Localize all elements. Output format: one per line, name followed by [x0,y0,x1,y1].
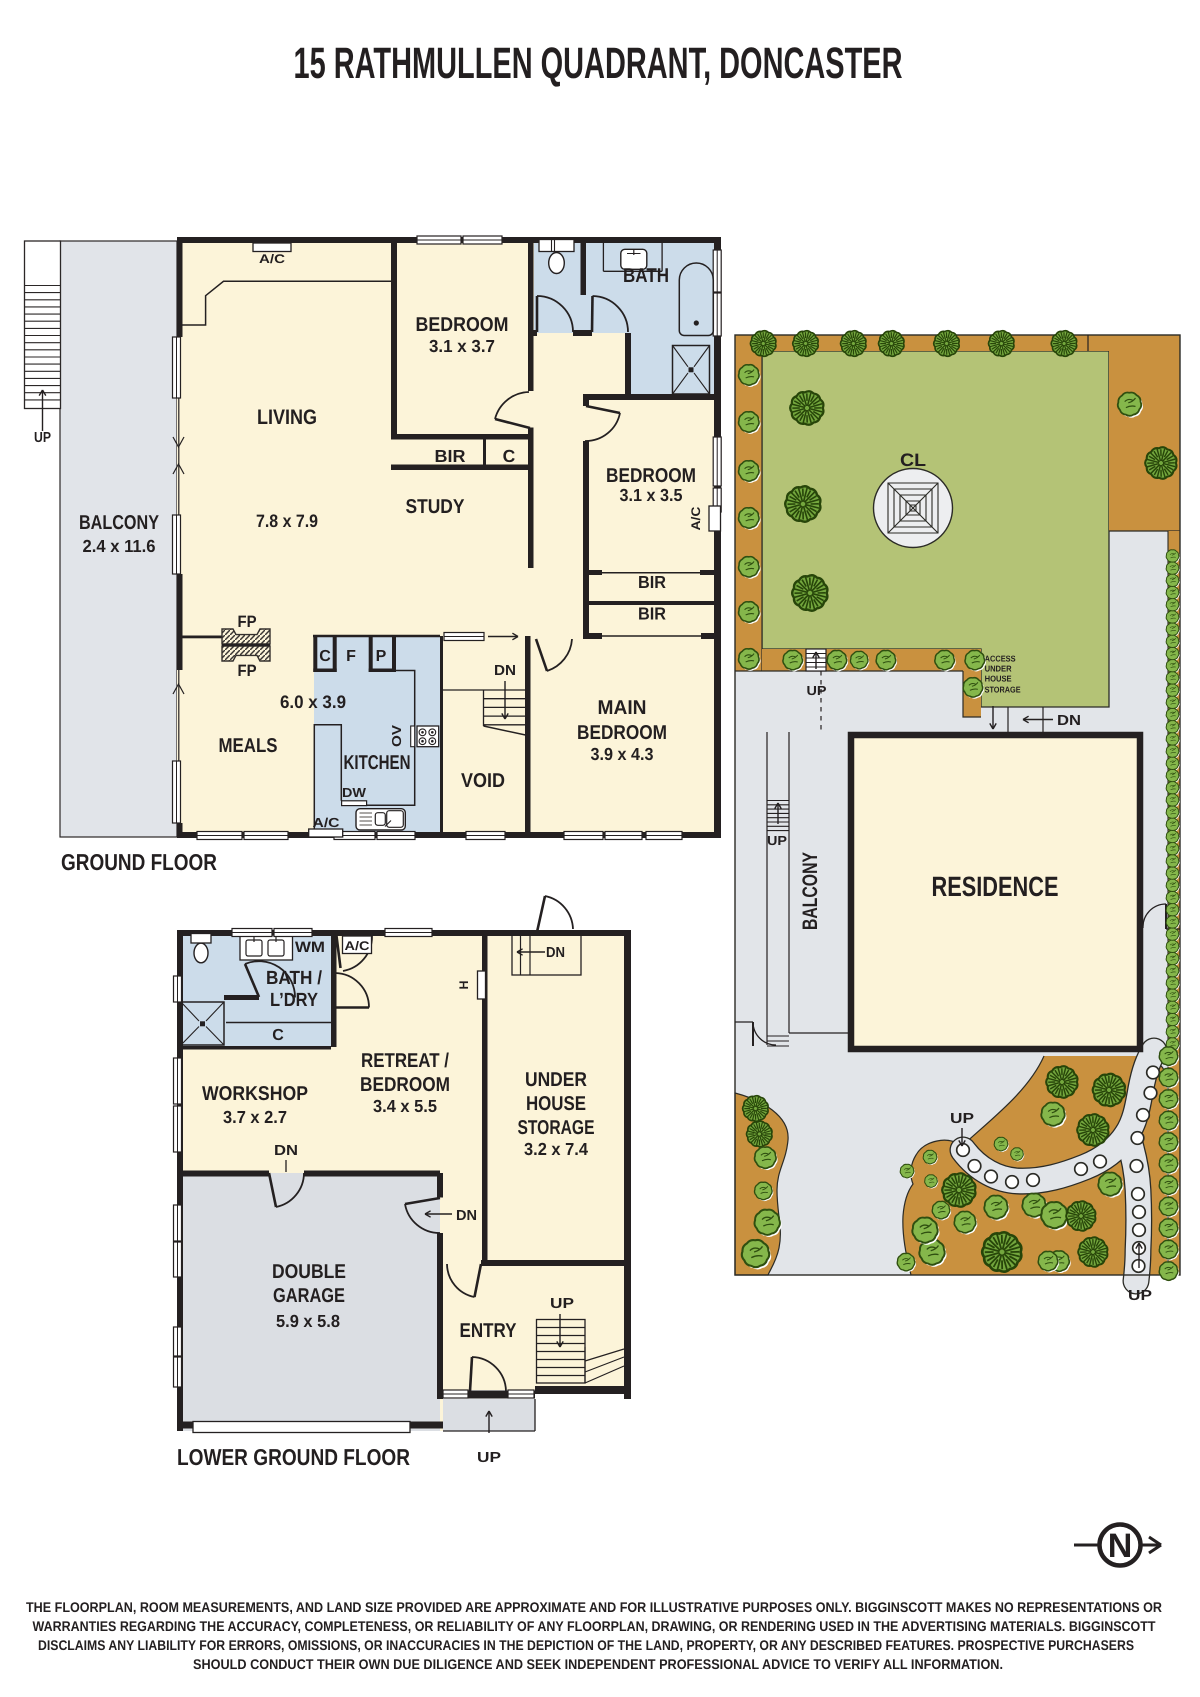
svg-text:SHOULD CONDUCT THEIR OWN DUE D: SHOULD CONDUCT THEIR OWN DUE DILIGENCE A… [193,1656,1003,1672]
svg-text:MEALS: MEALS [219,735,278,757]
svg-text:UP: UP [477,1450,501,1466]
svg-text:3.1 x 3.5: 3.1 x 3.5 [620,485,683,505]
svg-text:3.9 x 4.3: 3.9 x 4.3 [591,744,654,764]
svg-text:N: N [1108,1527,1133,1565]
svg-text:C: C [503,446,516,466]
svg-text:ENTRY: ENTRY [460,1320,518,1342]
svg-text:UNDER: UNDER [985,664,1012,674]
svg-text:H: H [457,980,471,989]
svg-text:DN: DN [456,1208,477,1224]
svg-text:5.9 x 5.8: 5.9 x 5.8 [276,1311,340,1331]
svg-text:RETREAT /: RETREAT / [361,1050,449,1072]
svg-text:15 RATHMULLEN QUADRANT, DONCAS: 15 RATHMULLEN QUADRANT, DONCASTER [294,39,903,88]
svg-text:BEDROOM: BEDROOM [577,722,667,744]
svg-text:BALCONY: BALCONY [799,852,822,930]
svg-text:LOWER GROUND FLOOR: LOWER GROUND FLOOR [177,1444,410,1470]
svg-text:DISCLAIMS ANY LIABILITY FOR ER: DISCLAIMS ANY LIABILITY FOR ERRORS, OMIS… [38,1637,1134,1653]
svg-text:GARAGE: GARAGE [273,1285,345,1307]
svg-text:HOUSE: HOUSE [985,674,1012,684]
svg-text:UP: UP [550,1296,574,1312]
svg-text:UP: UP [1128,1288,1152,1304]
svg-text:BEDROOM: BEDROOM [360,1074,450,1096]
svg-text:BATH: BATH [623,265,669,287]
svg-text:2.4 x 11.6: 2.4 x 11.6 [83,536,156,556]
svg-text:WORKSHOP: WORKSHOP [202,1083,308,1105]
svg-text:DN: DN [494,663,516,679]
svg-text:UP: UP [34,430,51,446]
svg-text:3.7 x 2.7: 3.7 x 2.7 [223,1107,287,1127]
svg-text:A/C: A/C [313,815,341,830]
svg-text:RESIDENCE: RESIDENCE [932,871,1059,902]
svg-text:OV: OV [389,725,404,747]
svg-text:7.8 x 7.9: 7.8 x 7.9 [256,511,318,531]
svg-text:GROUND FLOOR: GROUND FLOOR [61,849,217,875]
svg-text:C: C [319,648,331,665]
svg-text:HOUSE: HOUSE [526,1093,586,1115]
svg-text:UP: UP [767,833,787,848]
svg-text:DOUBLE: DOUBLE [272,1261,346,1283]
svg-text:VOID: VOID [461,770,505,792]
svg-text:LIVING: LIVING [257,406,317,429]
svg-text:FP: FP [238,662,257,680]
svg-text:BIR: BIR [638,572,666,592]
svg-text:STORAGE: STORAGE [518,1117,595,1139]
svg-text:MAIN: MAIN [598,697,647,719]
svg-text:KITCHEN: KITCHEN [344,752,411,774]
svg-text:CL: CL [900,450,926,470]
svg-text:ACCESS: ACCESS [985,654,1016,664]
svg-text:WM: WM [295,939,325,956]
svg-text:3.4 x 5.5: 3.4 x 5.5 [373,1096,437,1116]
svg-text:DN: DN [274,1143,298,1159]
svg-text:BIR: BIR [435,446,466,466]
svg-text:A/C: A/C [259,252,285,266]
svg-text:A/C: A/C [689,507,703,531]
svg-text:BIR: BIR [638,604,666,624]
svg-text:3.1 x 3.7: 3.1 x 3.7 [429,336,495,356]
svg-text:L’DRY: L’DRY [270,990,318,1011]
svg-text:FP: FP [238,613,257,631]
svg-text:STUDY: STUDY [406,496,466,518]
svg-text:WARRANTIES REGARDING THE ACCUR: WARRANTIES REGARDING THE ACCURACY, COMPL… [33,1618,1156,1634]
svg-text:BATH /: BATH / [266,968,323,989]
svg-text:6.0 x 3.9: 6.0 x 3.9 [280,692,346,712]
svg-text:BEDROOM: BEDROOM [416,314,509,336]
svg-text:C: C [272,1027,284,1044]
svg-text:F: F [346,648,356,665]
svg-text:THE FLOORPLAN, ROOM MEASUREMEN: THE FLOORPLAN, ROOM MEASUREMENTS, AND LA… [26,1599,1162,1615]
svg-text:DW: DW [342,785,367,800]
svg-text:BEDROOM: BEDROOM [606,465,696,487]
svg-text:3.2 x 7.4: 3.2 x 7.4 [524,1139,588,1159]
svg-text:UP: UP [950,1111,974,1127]
svg-text:P: P [376,648,387,665]
svg-text:STORAGE: STORAGE [985,685,1021,695]
svg-text:A/C: A/C [345,939,370,953]
svg-text:UP: UP [807,683,827,698]
svg-text:DN: DN [546,945,565,961]
svg-text:BALCONY: BALCONY [79,512,160,534]
svg-text:DN: DN [1057,713,1081,729]
svg-text:UNDER: UNDER [525,1069,587,1091]
